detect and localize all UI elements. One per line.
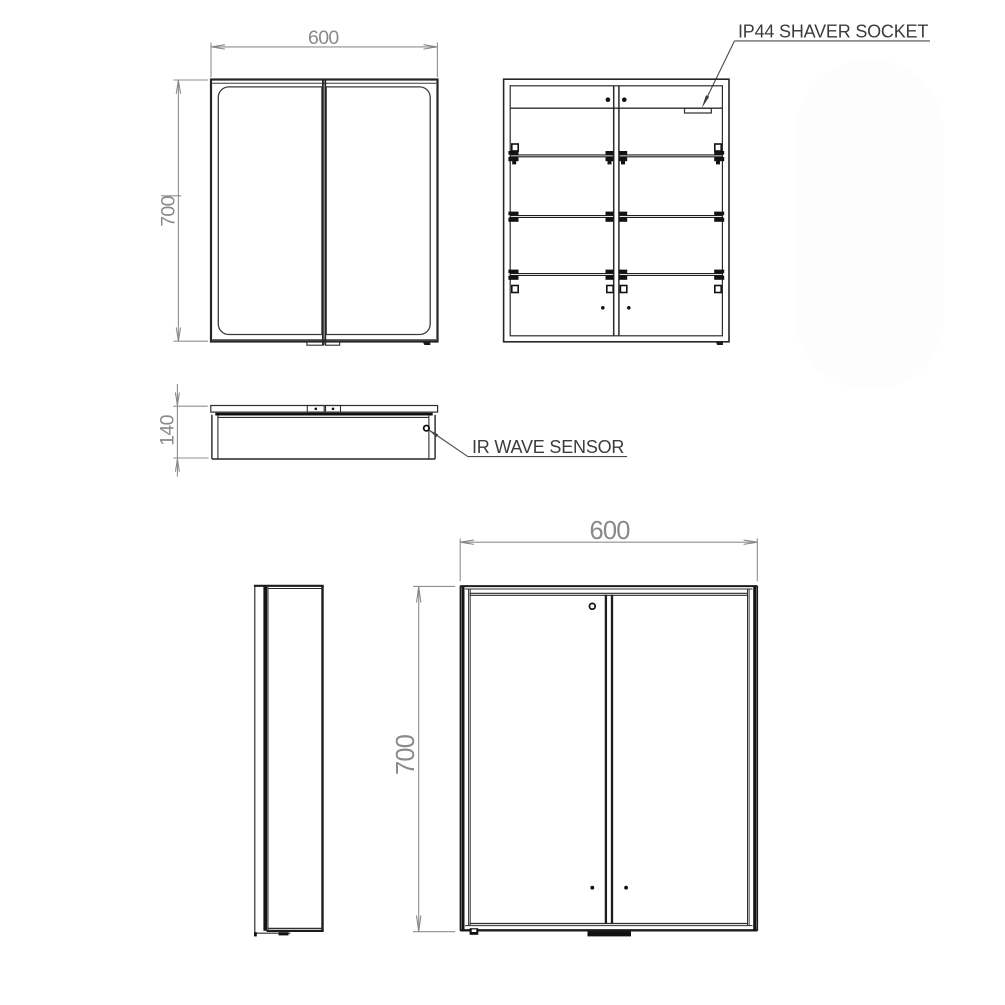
svg-text:700: 700 [392, 734, 420, 775]
svg-text:140: 140 [157, 414, 179, 445]
svg-text:700: 700 [157, 195, 179, 226]
svg-text:600: 600 [590, 517, 631, 545]
svg-text:IP44 SHAVER SOCKET: IP44 SHAVER SOCKET [738, 22, 928, 42]
svg-text:600: 600 [308, 27, 339, 49]
svg-text:IR WAVE SENSOR: IR WAVE SENSOR [472, 437, 624, 457]
